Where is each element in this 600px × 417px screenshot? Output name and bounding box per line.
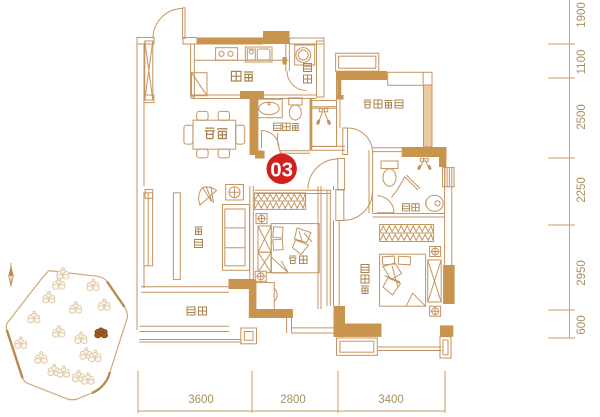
svg-text:2250: 2250 — [576, 177, 588, 203]
svg-text:1100: 1100 — [576, 50, 588, 75]
svg-text:2800: 2800 — [280, 394, 306, 406]
svg-text:3600: 3600 — [188, 394, 214, 406]
svg-text:2500: 2500 — [576, 104, 588, 130]
svg-text:03: 03 — [270, 158, 293, 181]
svg-text:600: 600 — [576, 315, 588, 334]
svg-text:2950: 2950 — [576, 260, 588, 286]
svg-text:1900: 1900 — [576, 2, 588, 28]
svg-text:3400: 3400 — [378, 394, 404, 406]
